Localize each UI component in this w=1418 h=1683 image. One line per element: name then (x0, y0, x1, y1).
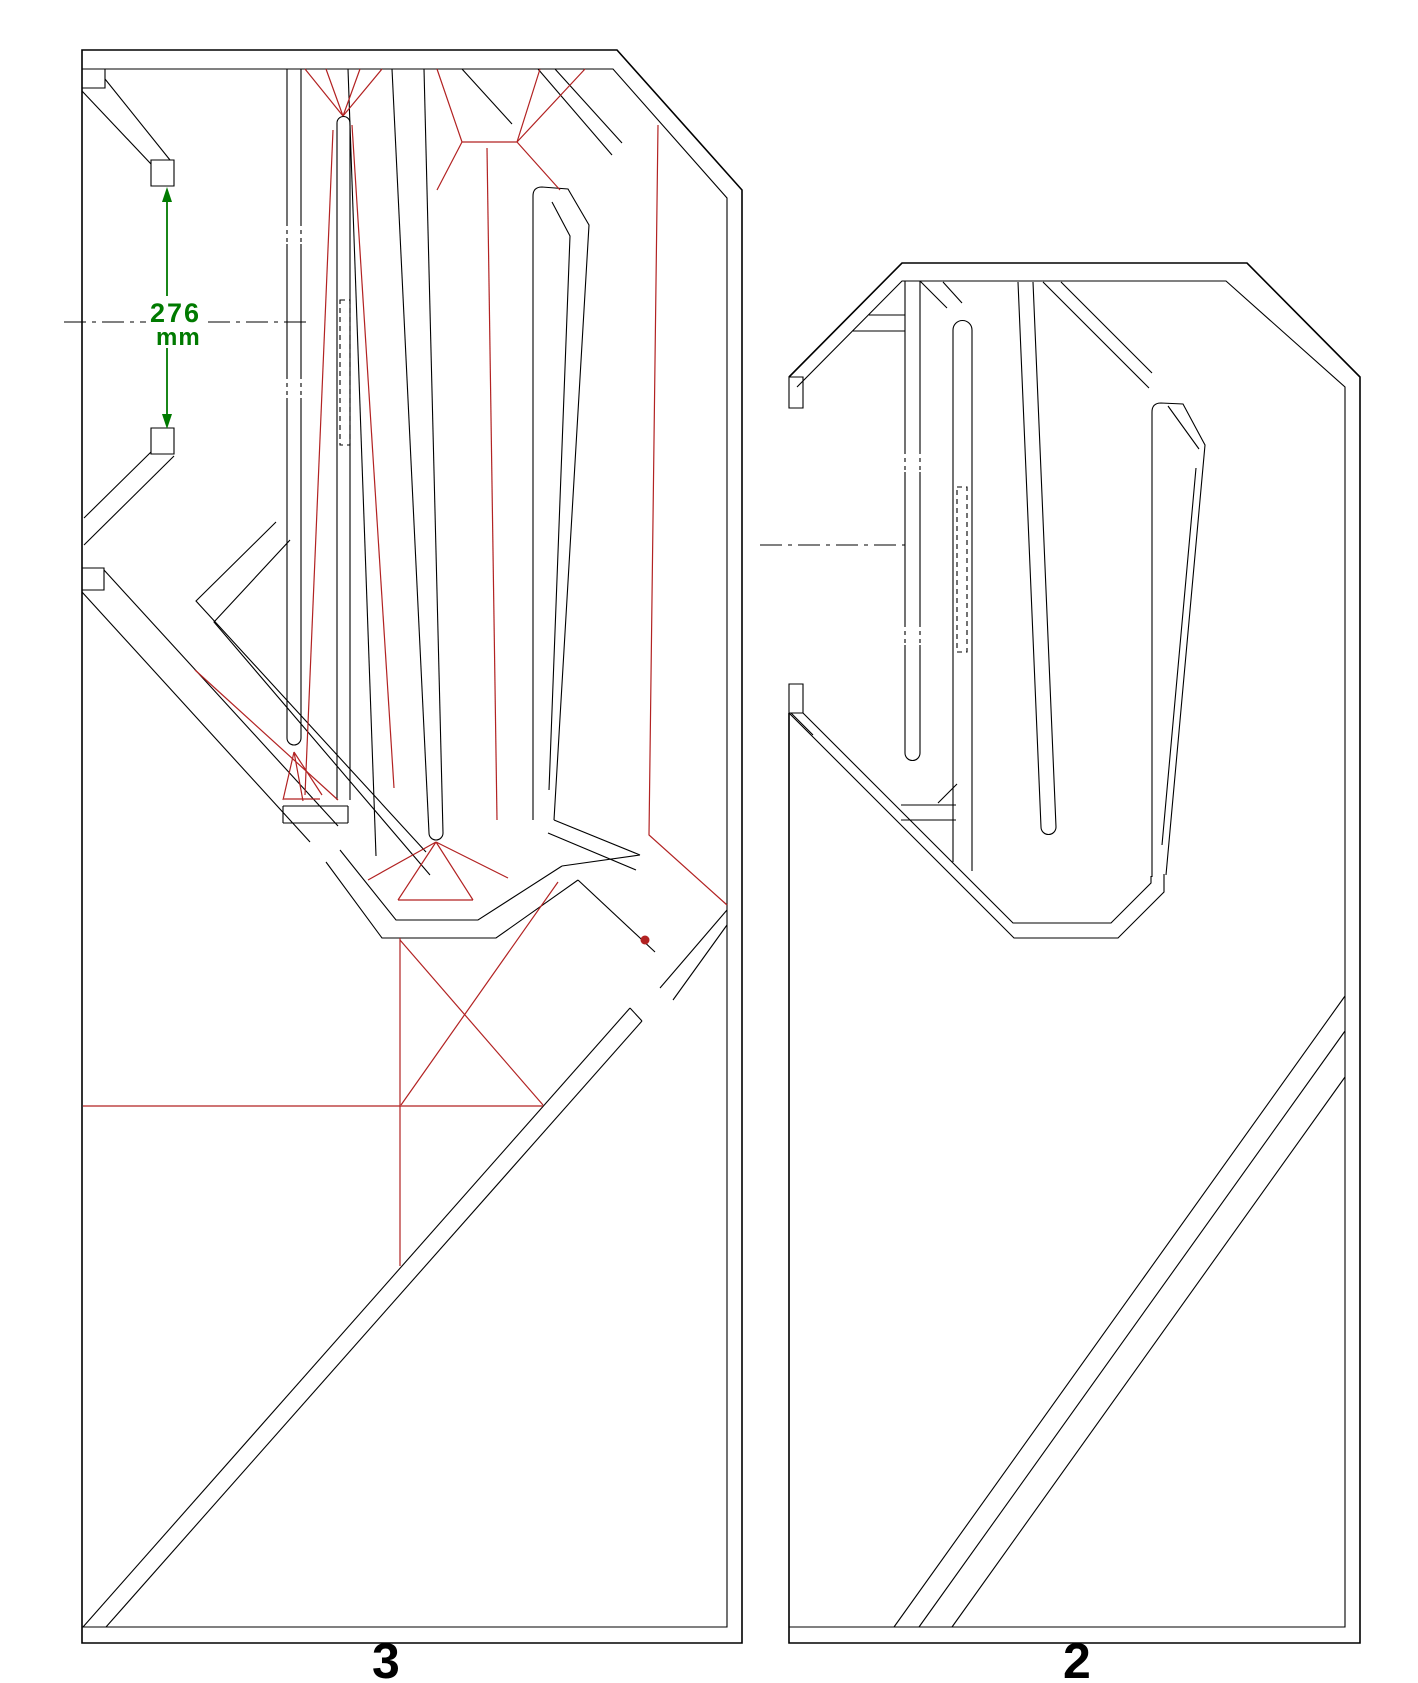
panel-3-drawing: 276 mm 3 (64, 50, 742, 1683)
drawing-sheet: 276 mm 3 (0, 0, 1418, 1683)
panel-2-outline (789, 263, 1360, 1643)
panel-3-dimension-annotation: 276 mm (64, 187, 310, 429)
panel-2-internal-structure (789, 281, 1345, 1627)
panel-3-label: 3 (372, 1633, 400, 1683)
panel-2-drawing: 2 (760, 263, 1360, 1683)
panel-3-fold-lines (83, 69, 727, 1266)
cad-canvas: 276 mm 3 (0, 0, 1418, 1683)
panel-2-label: 2 (1063, 1633, 1091, 1683)
panel-3-outline (82, 50, 742, 1643)
red-marker-dot (641, 936, 650, 945)
dimension-unit: mm (156, 324, 201, 351)
